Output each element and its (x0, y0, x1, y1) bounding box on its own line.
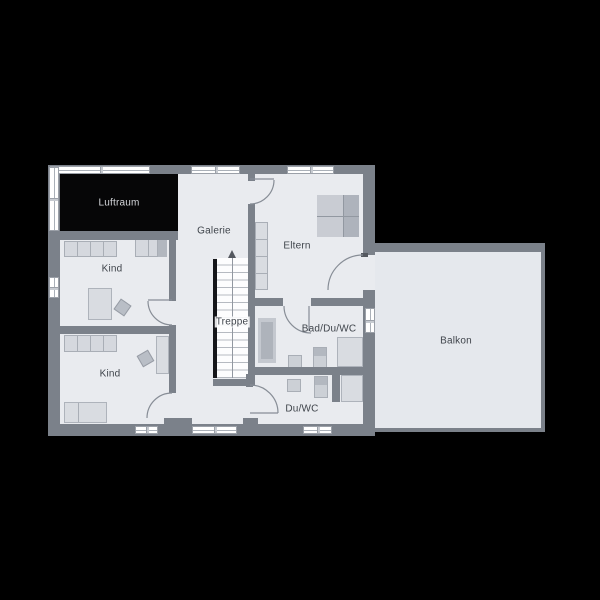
door-arc-kind-unten (147, 393, 172, 418)
door-arc-balkon (328, 255, 363, 290)
room-label-treppe: Treppe (215, 317, 250, 328)
room-label-kind-unten: Kind (100, 369, 121, 380)
room-label-galerie: Galerie (197, 226, 231, 237)
room-label-balkon: Balkon (440, 336, 472, 347)
door-arc-kind-oben (148, 301, 172, 325)
door-swing-arcs (0, 0, 600, 600)
room-label-luftraum: Luftraum (98, 198, 139, 209)
room-label-du-wc: Du/WC (285, 404, 318, 415)
door-arc-eltern (250, 180, 274, 204)
room-label-eltern: Eltern (283, 241, 310, 252)
floorplan-canvas: Luftraum Galerie Eltern Kind Kind Treppe… (0, 0, 600, 600)
room-label-bad-du-wc: Bad/Du/WC (302, 324, 357, 335)
door-arc-duwc (250, 385, 278, 413)
room-label-kind-oben: Kind (102, 264, 123, 275)
